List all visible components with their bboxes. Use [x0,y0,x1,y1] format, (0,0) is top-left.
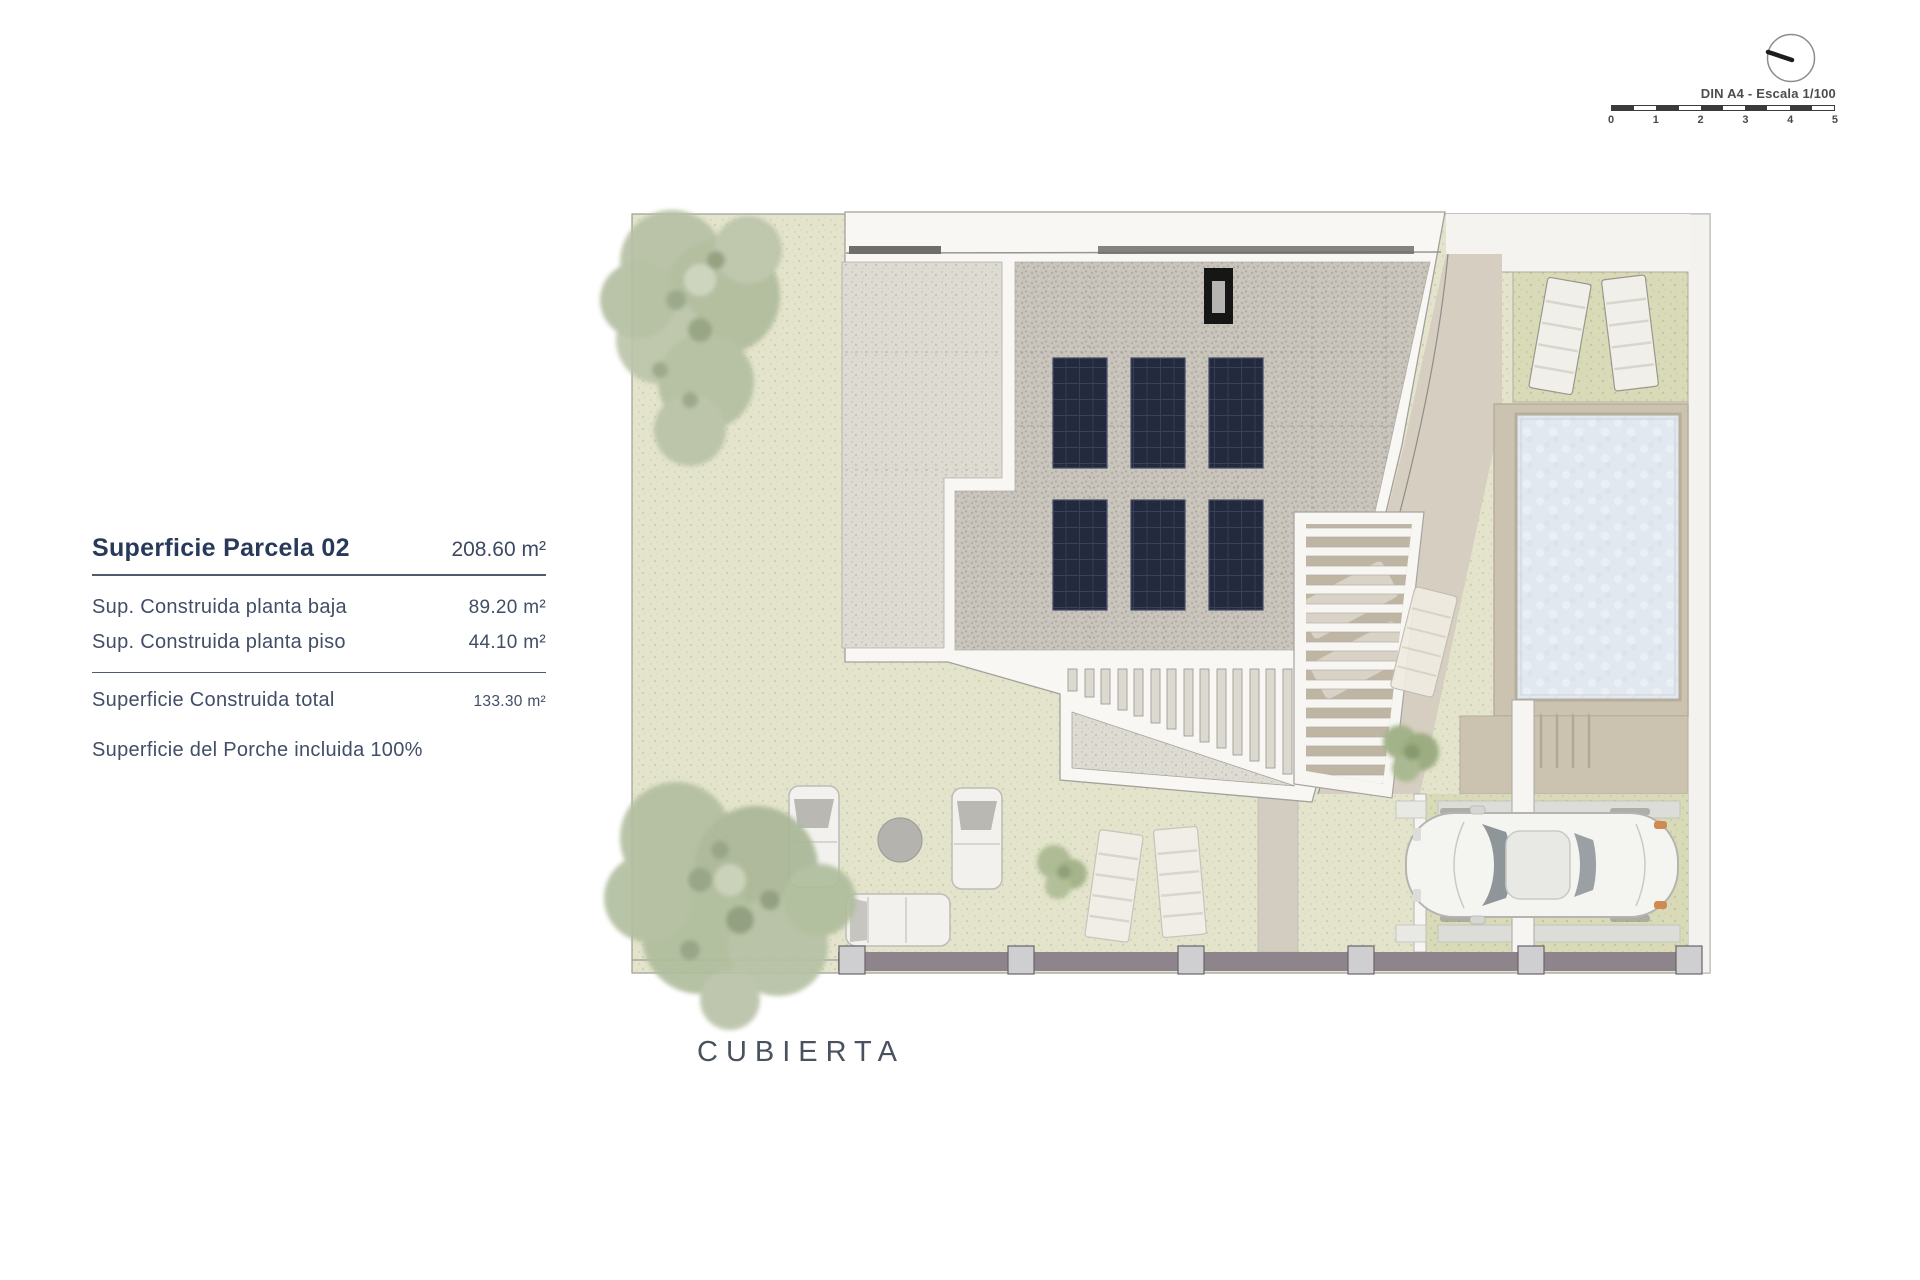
scale-tick: 0 [1601,114,1621,126]
scale-tick: 4 [1780,114,1800,126]
area-row-label: Sup. Construida planta baja [92,590,347,625]
solar-panel [1053,500,1107,610]
area-row-value: 44.10 m² [469,625,546,660]
divider [92,574,546,576]
scale-tick: 5 [1825,114,1845,126]
solar-panel [1209,500,1263,610]
armchair [952,788,1002,889]
garden-path [1258,794,1298,952]
scale-label: DIN A4 - Escala 1/100 [1611,86,1836,101]
coffee-table [878,818,922,862]
parapet-segment [849,246,941,254]
area-row: Sup. Construida planta piso 44.10 m² [92,625,546,660]
porch-note: Superficie del Porche incluida 100% [92,739,546,762]
scale-tick: 2 [1691,114,1711,126]
scale-bar [1611,105,1835,111]
swimming-pool [1516,414,1680,700]
solar-panel [1131,500,1185,610]
scale-tick: 3 [1735,114,1755,126]
side-walkway [1688,214,1710,973]
total-value: 133.30 m² [474,684,547,719]
parcel-area-value: 208.60 m² [451,538,546,562]
solar-panel [1131,358,1185,468]
area-row: Sup. Construida planta baja 89.20 m² [92,590,546,625]
chimney [1204,268,1233,324]
scale-tick: 1 [1646,114,1666,126]
solar-panel [1053,358,1107,468]
plan-title: CUBIERTA [697,1036,905,1069]
surface-info-panel: Superficie Parcela 02 208.60 m² Sup. Con… [92,534,546,762]
solar-panel [1209,358,1263,468]
compass-icon [1761,29,1821,89]
scale-ticks: 0 1 2 3 4 5 [1601,114,1845,126]
area-row-value: 89.20 m² [469,590,546,625]
parapet-segment [1098,246,1414,254]
divider [92,672,546,673]
total-label: Superficie Construida total [92,683,335,718]
panel-title: Superficie Parcela 02 [92,534,350,563]
area-row-label: Sup. Construida planta piso [92,625,346,660]
sofa [846,894,950,946]
sun-lounger [1153,826,1206,937]
total-row: Superficie Construida total 133.30 m² [92,683,546,719]
car [1406,806,1678,924]
